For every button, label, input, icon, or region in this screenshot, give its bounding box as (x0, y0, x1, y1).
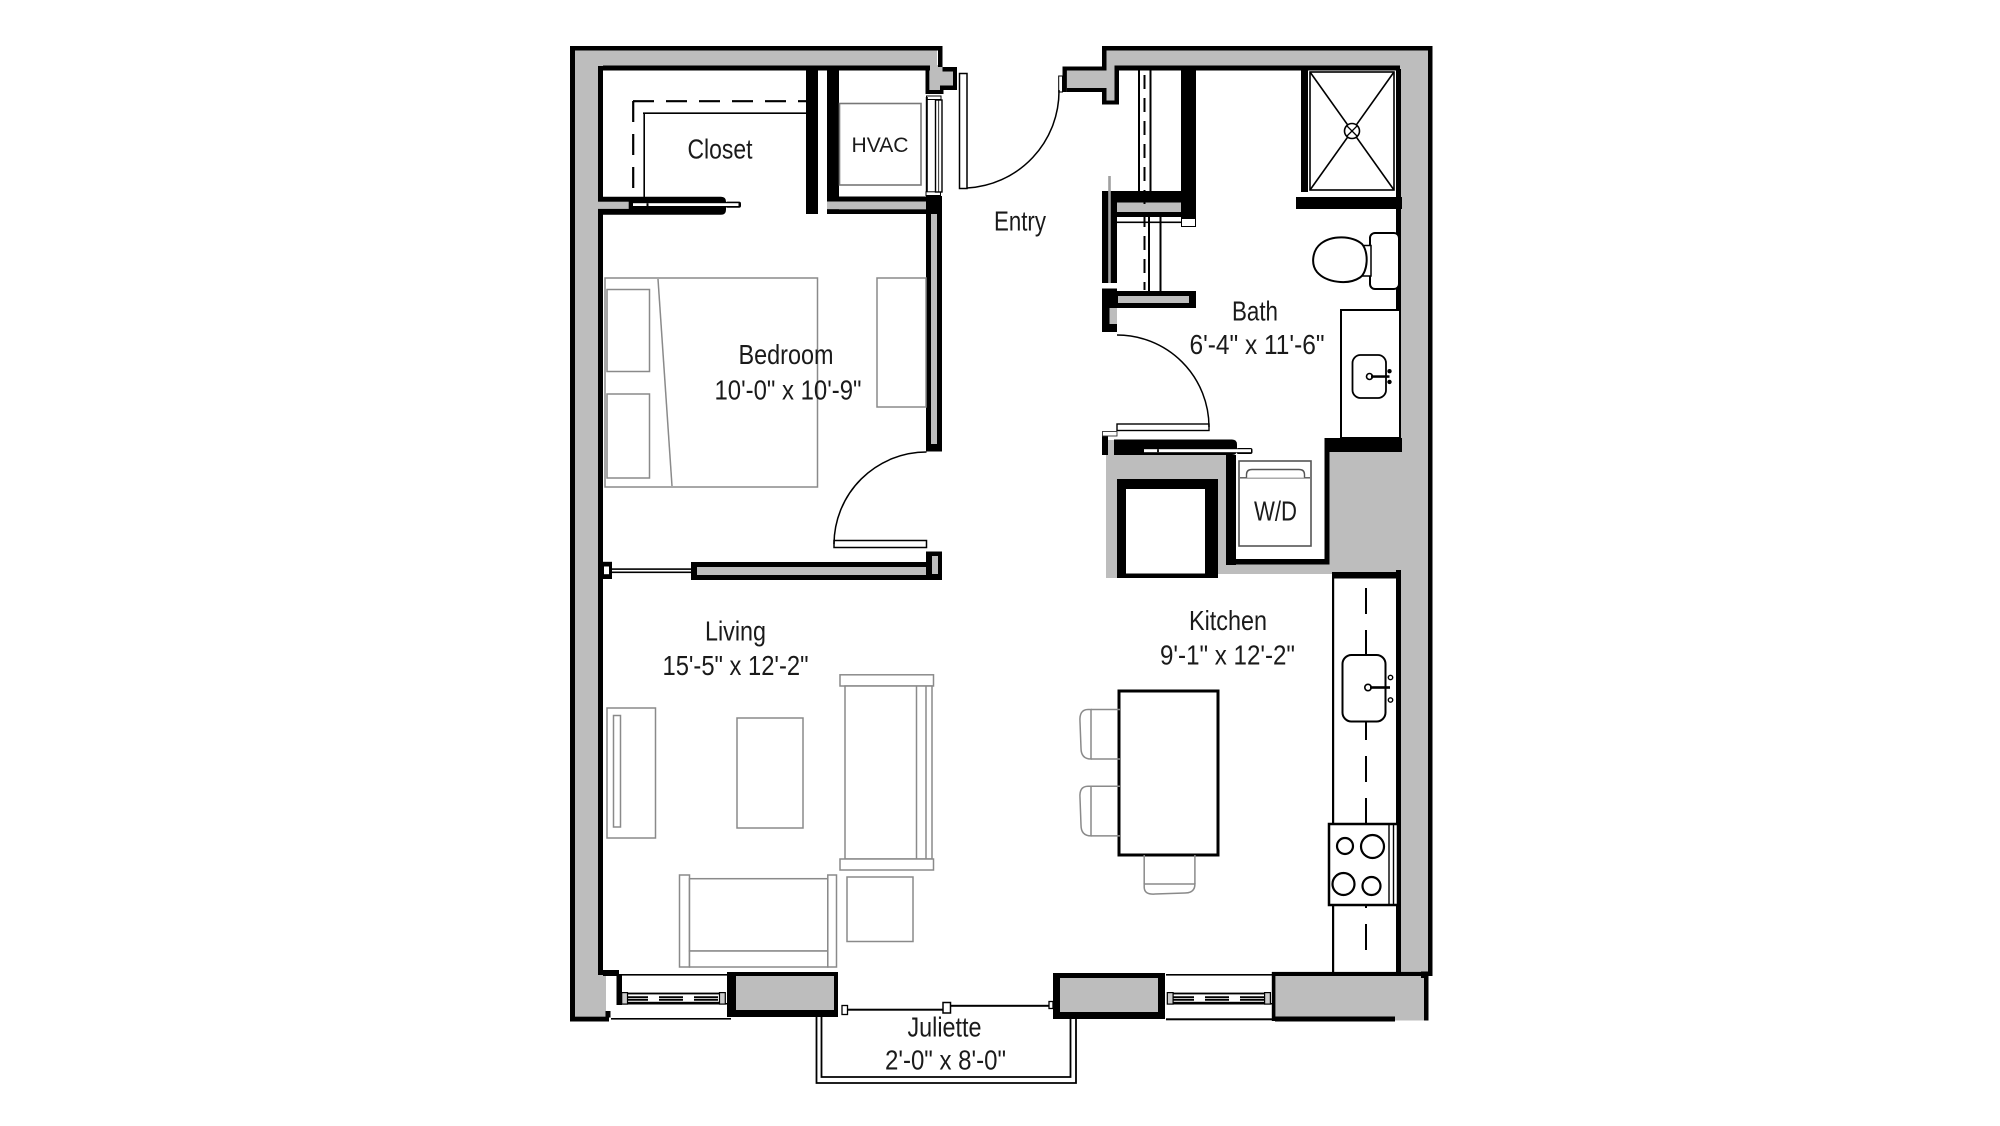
svg-text:HVAC: HVAC (852, 134, 909, 157)
svg-text:Entry: Entry (994, 206, 1046, 237)
svg-text:10'-0" x 10'-9": 10'-0" x 10'-9" (715, 375, 862, 406)
svg-text:Kitchen: Kitchen (1189, 605, 1267, 636)
svg-text:Juliette: Juliette (908, 1012, 982, 1043)
svg-text:2'-0" x 8'-0": 2'-0" x 8'-0" (885, 1045, 1006, 1076)
svg-text:9'-1" x 12'-2": 9'-1" x 12'-2" (1160, 640, 1295, 671)
svg-text:6'-4" x 11'-6": 6'-4" x 11'-6" (1190, 329, 1325, 360)
svg-text:Bath: Bath (1232, 296, 1278, 327)
svg-text:Closet: Closet (688, 134, 753, 165)
svg-text:Living: Living (705, 616, 766, 647)
svg-text:15'-5" x 12'-2": 15'-5" x 12'-2" (663, 650, 809, 681)
svg-text:W/D: W/D (1254, 496, 1297, 527)
svg-text:Bedroom: Bedroom (739, 339, 834, 370)
